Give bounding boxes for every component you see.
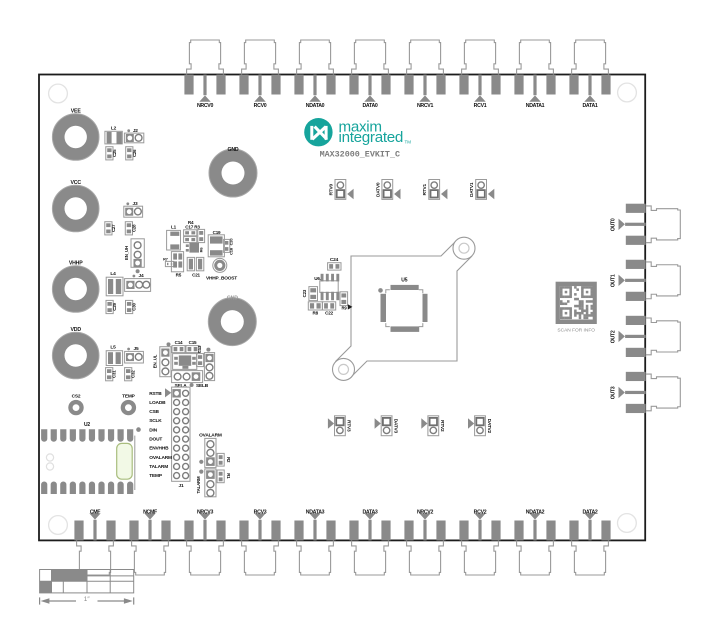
svg-text:GND: GND [228,147,239,153]
svg-text:OUT2: OUT2 [611,330,617,343]
svg-text:C30: C30 [132,303,137,311]
svg-text:DATV2: DATV2 [486,419,492,434]
svg-text:NRCV3: NRCV3 [197,509,213,515]
svg-text:EN_UH: EN_UH [124,246,129,260]
svg-text:J3: J3 [133,201,138,207]
svg-text:L2: L2 [111,125,117,131]
svg-text:NCMF: NCMF [143,509,157,515]
svg-text:CMF: CMF [90,509,100,515]
svg-text:J2: J2 [133,128,138,134]
svg-text:OUT3: OUT3 [611,386,617,399]
svg-text:1″: 1″ [84,596,91,603]
svg-text:L1: L1 [171,225,177,230]
svg-text:DATV0: DATV0 [375,182,381,197]
svg-text:NDATA0: NDATA0 [306,103,325,109]
svg-text:C26: C26 [132,149,137,157]
svg-text:OUT1: OUT1 [611,274,617,287]
svg-text:C32: C32 [131,370,136,378]
svg-text:TM: TM [405,140,412,145]
svg-text:OUT0: OUT0 [611,218,617,231]
svg-text:VHHP: VHHP [69,261,83,267]
svg-text:RCV3: RCV3 [254,509,267,515]
svg-text:C14: C14 [175,340,183,345]
svg-text:DATV1: DATV1 [469,182,475,197]
svg-text:NRCV0: NRCV0 [197,103,213,109]
svg-text:C24: C24 [330,257,339,263]
svg-text:TEMP: TEMP [122,394,136,400]
svg-text:SELA: SELA [175,383,188,389]
svg-text:RTV1: RTV1 [422,184,428,196]
svg-text:C31: C31 [112,370,117,378]
svg-text:NDATA3: NDATA3 [306,509,325,515]
svg-text:C17 R3: C17 R3 [185,224,200,229]
svg-text:DIN: DIN [149,427,157,433]
svg-text:L4: L4 [110,271,116,277]
svg-text:C27: C27 [111,224,116,232]
svg-text:R5: R5 [176,273,182,278]
svg-text:MAX32000_EVKIT_C: MAX32000_EVKIT_C [320,149,400,159]
svg-text:C18: C18 [228,247,233,255]
svg-text:NRCV2: NRCV2 [417,509,433,515]
svg-text:L5: L5 [110,345,116,351]
svg-text:C13: C13 [197,345,202,353]
svg-text:RCV1: RCV1 [474,103,487,109]
svg-text:GND: GND [227,295,238,301]
svg-text:R8: R8 [313,310,319,315]
svg-text:R1: R1 [226,473,231,479]
svg-text:C23: C23 [302,289,307,297]
svg-text:integrated: integrated [339,129,404,146]
svg-text:SELB: SELB [196,383,209,389]
svg-text:RTV0: RTV0 [328,184,334,196]
svg-text:CS2: CS2 [72,394,81,400]
svg-text:DATA0: DATA0 [362,103,377,109]
svg-text:SCAN FOR INFO: SCAN FOR INFO [557,328,595,334]
svg-text:J1: J1 [179,483,184,489]
svg-text:RTV2: RTV2 [439,420,445,432]
svg-text:R2: R2 [226,457,231,463]
svg-text:TALARM: TALARM [149,464,168,470]
svg-text:SCLK: SCLK [149,418,162,424]
svg-text:VDD: VDD [71,327,82,333]
svg-text:DOUT: DOUT [149,437,162,443]
svg-text:C19: C19 [213,230,221,235]
svg-text:NRCV1: NRCV1 [417,103,433,109]
svg-text:DATA2: DATA2 [582,509,597,515]
svg-text:OVALARM: OVALARM [149,455,172,461]
svg-text:TALARM: TALARM [196,476,201,494]
svg-text:DATV3: DATV3 [392,419,398,434]
svg-text:C25: C25 [112,149,117,157]
svg-text:LOADB: LOADB [149,400,166,406]
svg-text:NDATA1: NDATA1 [526,103,545,109]
svg-text:RCV2: RCV2 [474,509,487,515]
svg-text:U2: U2 [84,422,90,428]
svg-text:R7: R7 [163,257,168,261]
svg-text:RCV0: RCV0 [254,103,267,109]
svg-text:DATA1: DATA1 [582,103,597,109]
svg-text:C22: C22 [325,310,333,315]
svg-text:J4: J4 [139,273,144,279]
svg-text:EN_UL: EN_UL [153,354,158,368]
svg-text:C28: C28 [131,224,136,232]
svg-text:VEE: VEE [71,109,82,115]
svg-text:U6.: U6. [314,276,321,281]
svg-text:VCC: VCC [71,180,82,186]
svg-text:ENVHHB: ENVHHB [149,446,169,452]
svg-text:R9: R9 [342,306,348,311]
svg-text:J5: J5 [134,346,139,352]
svg-text:C20: C20 [228,238,233,246]
svg-text:U5: U5 [401,278,407,284]
svg-text:OVALARM: OVALARM [199,432,222,438]
svg-text:TEMP: TEMP [149,473,163,479]
svg-text:RSTB: RSTB [149,391,162,397]
svg-text:DATA3: DATA3 [362,509,377,515]
svg-text:RTV3: RTV3 [346,420,352,432]
svg-text:CSB: CSB [149,409,159,415]
svg-text:NDATA2: NDATA2 [526,509,545,515]
svg-text:C15: C15 [189,340,197,345]
svg-text:C29: C29 [112,303,117,311]
svg-text:VHHP_BOOST: VHHP_BOOST [206,276,237,282]
svg-text:C21: C21 [192,273,200,278]
